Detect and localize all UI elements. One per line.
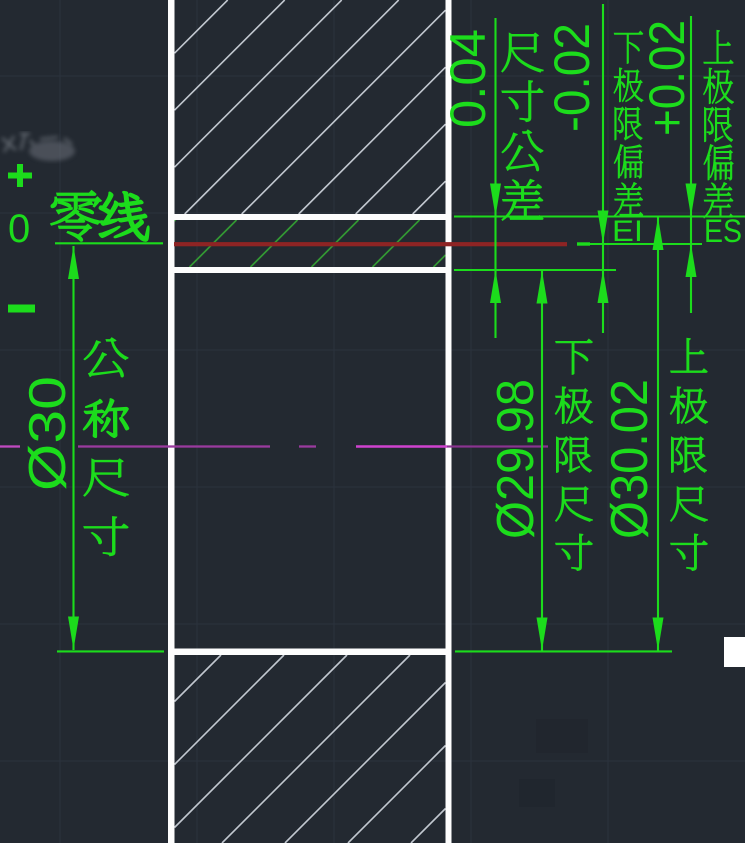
svg-text:0.04: 0.04 (440, 29, 496, 128)
svg-text:ES: ES (704, 213, 742, 249)
svg-text:Ø30: Ø30 (19, 376, 77, 491)
svg-text:0: 0 (8, 207, 30, 251)
svg-text:Ø30.02: Ø30.02 (601, 379, 659, 539)
svg-text:EI: EI (612, 215, 643, 248)
svg-text:+0.02: +0.02 (639, 20, 695, 136)
svg-text:-0.02: -0.02 (544, 23, 600, 132)
svg-text:Ø29.98: Ø29.98 (487, 379, 545, 539)
